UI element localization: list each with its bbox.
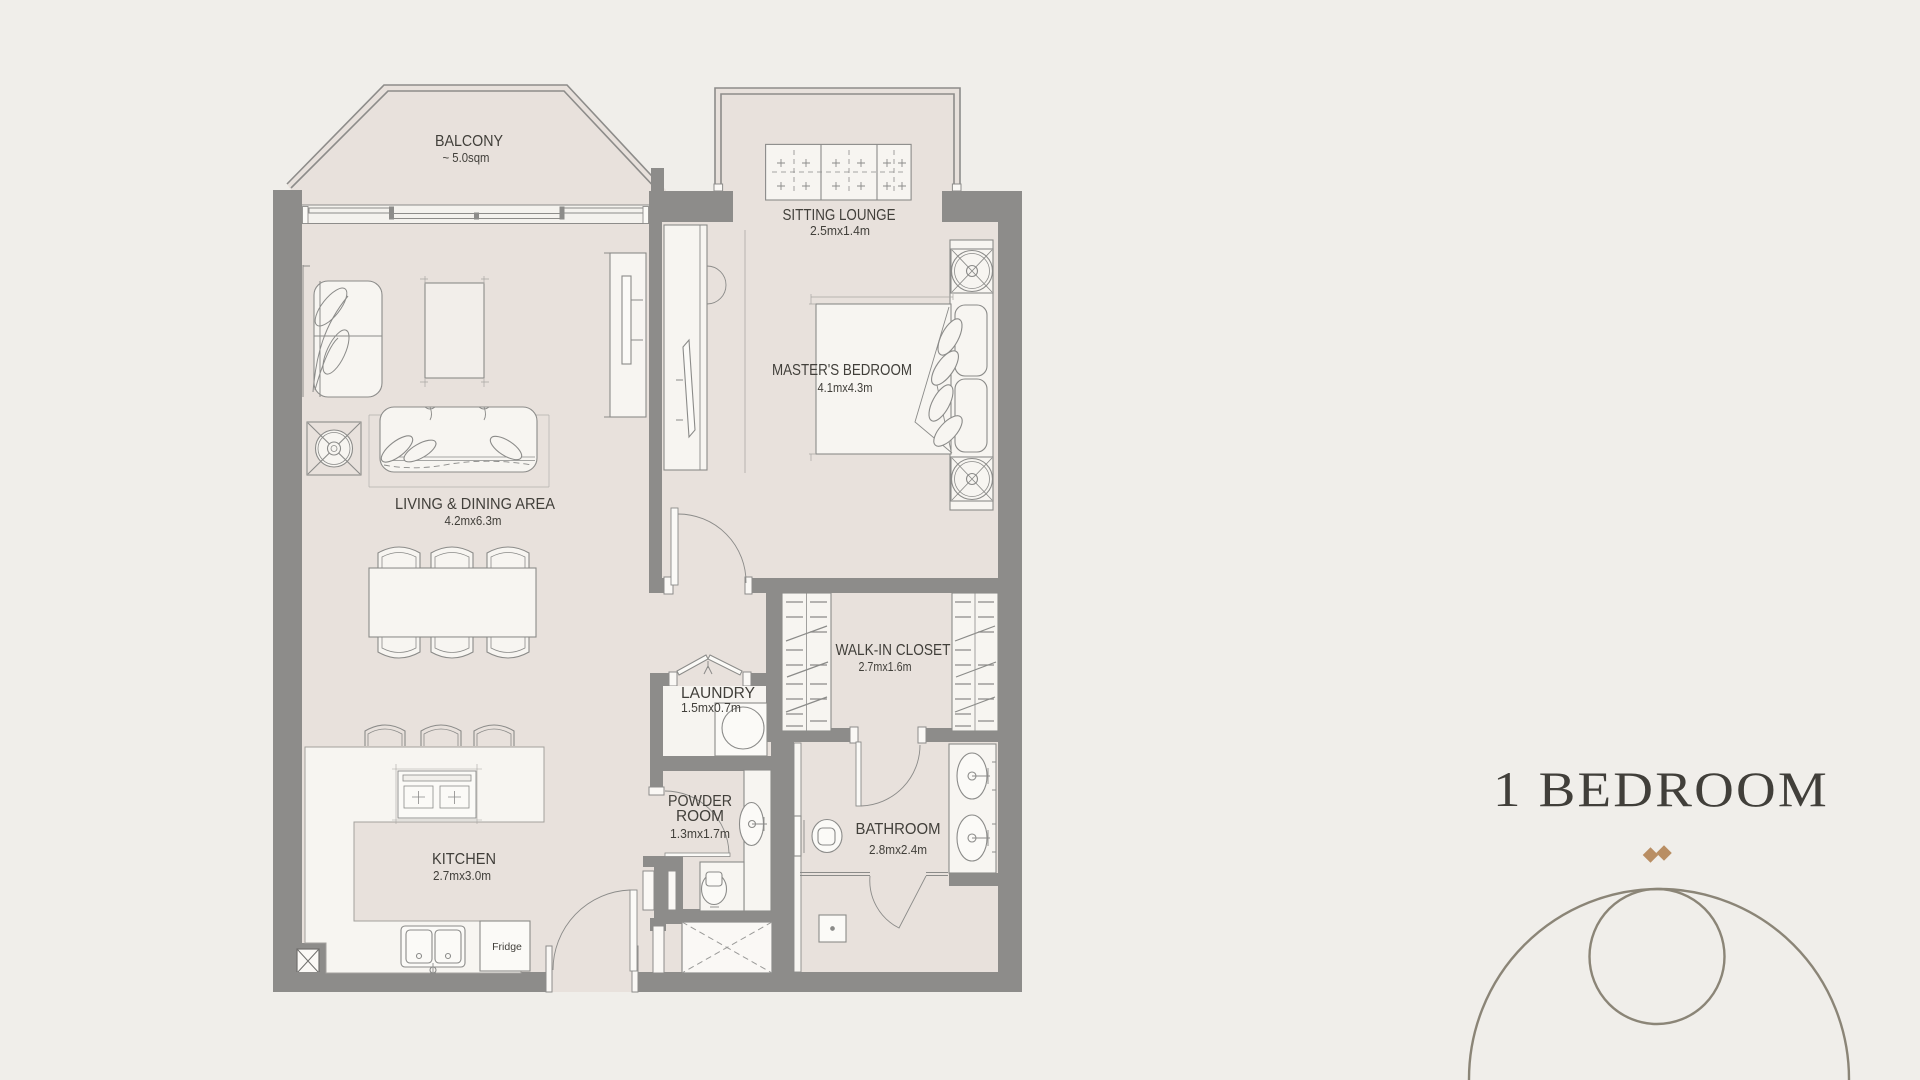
svg-text:SITTING LOUNGE: SITTING LOUNGE [783,207,896,224]
svg-text:1 BEDROOM: 1 BEDROOM [1493,761,1829,817]
svg-text:BALCONY: BALCONY [435,133,503,150]
svg-text:2.8mx2.4m: 2.8mx2.4m [869,842,927,857]
svg-text:LIVING & DINING AREA: LIVING & DINING AREA [395,496,556,513]
svg-text:2.7mx1.6m: 2.7mx1.6m [859,659,912,674]
svg-text:WALK-IN CLOSET: WALK-IN CLOSET [836,642,951,659]
svg-text:MASTER'S BEDROOM: MASTER'S BEDROOM [772,362,912,379]
svg-text:BATHROOM: BATHROOM [856,821,941,838]
svg-text:ROOM: ROOM [676,808,724,825]
svg-text:KITCHEN: KITCHEN [432,851,496,868]
svg-text:1.5mx0.7m: 1.5mx0.7m [681,700,741,715]
svg-text:4.1mx4.3m: 4.1mx4.3m [818,380,873,395]
svg-text:~ 5.0sqm: ~ 5.0sqm [443,150,490,165]
svg-text:Fridge: Fridge [492,941,522,953]
svg-text:1.3mx1.7m: 1.3mx1.7m [670,826,730,841]
svg-text:2.7mx3.0m: 2.7mx3.0m [433,868,491,883]
svg-text:4.2mx6.3m: 4.2mx6.3m [445,513,502,528]
svg-text:2.5mx1.4m: 2.5mx1.4m [810,223,870,238]
